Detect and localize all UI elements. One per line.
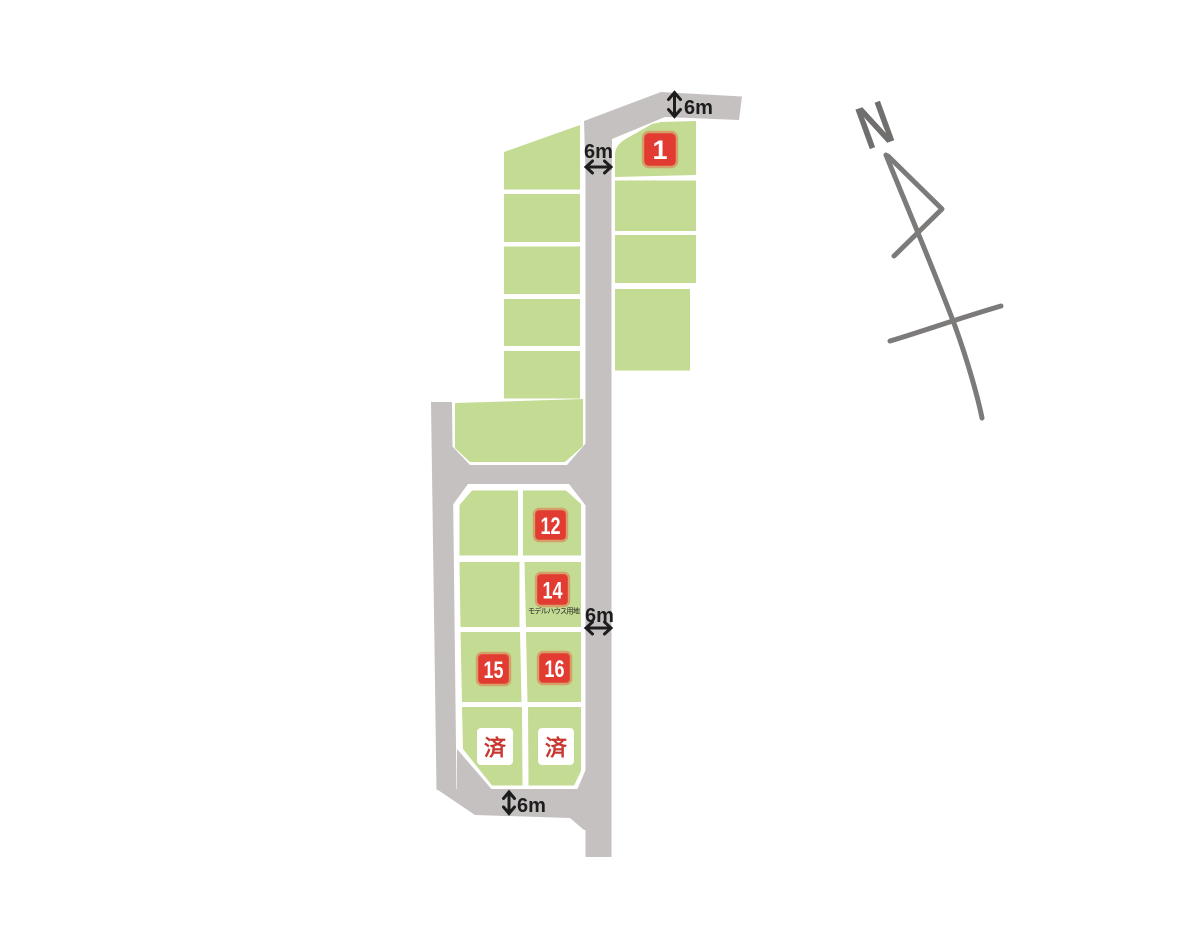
svg-text:12: 12 (541, 513, 561, 540)
svg-text:15: 15 (484, 657, 504, 684)
svg-text:14: 14 (543, 578, 563, 605)
svg-text:6m: 6m (684, 97, 713, 119)
svg-text:済: 済 (484, 736, 507, 761)
svg-text:16: 16 (545, 656, 565, 683)
svg-text:N: N (848, 88, 901, 163)
svg-text:モデルハウス用地: モデルハウス用地 (528, 607, 580, 616)
svg-text:6m: 6m (584, 141, 613, 163)
svg-text:6m: 6m (517, 795, 546, 817)
svg-text:1: 1 (652, 135, 667, 165)
svg-text:済: 済 (545, 736, 568, 761)
